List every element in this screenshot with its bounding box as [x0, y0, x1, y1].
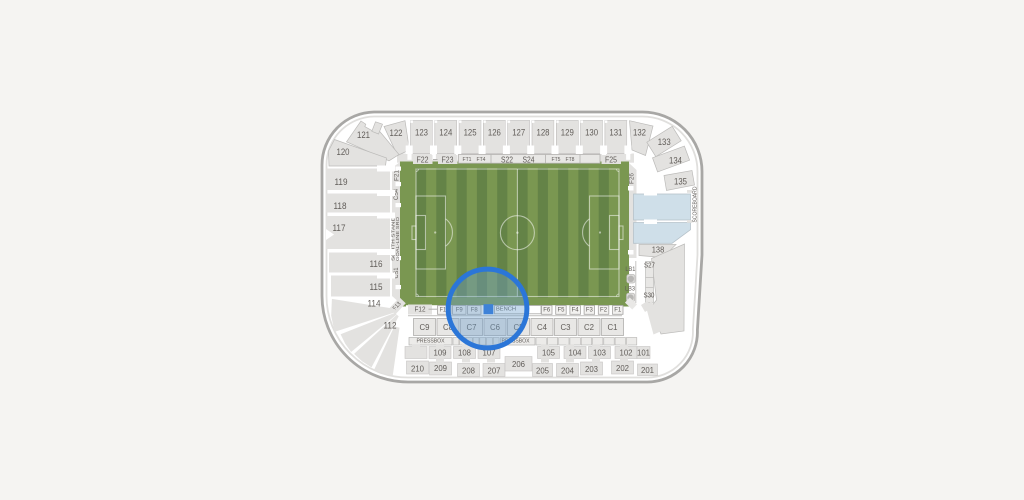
svg-text:LB3: LB3 [625, 286, 635, 293]
svg-text:209: 209 [434, 364, 447, 373]
svg-text:104: 104 [569, 349, 582, 358]
svg-text:102: 102 [620, 349, 633, 358]
svg-text:119: 119 [335, 177, 348, 187]
svg-text:118: 118 [334, 201, 347, 211]
svg-text:C9: C9 [420, 323, 430, 332]
svg-text:S24: S24 [523, 155, 536, 164]
svg-text:S22: S22 [501, 155, 513, 164]
svg-text:204: 204 [561, 367, 574, 376]
svg-text:120: 120 [337, 147, 350, 157]
svg-text:121: 121 [357, 130, 370, 140]
svg-text:127: 127 [512, 128, 525, 138]
svg-text:F12: F12 [415, 305, 426, 314]
svg-text:207: 207 [488, 367, 501, 376]
svg-text:S30: S30 [644, 293, 655, 300]
svg-text:133: 133 [658, 137, 671, 147]
svg-text:135: 135 [674, 177, 687, 187]
svg-text:203: 203 [585, 365, 598, 374]
svg-text:C3: C3 [561, 323, 571, 332]
svg-text:117: 117 [333, 223, 346, 233]
svg-text:206: 206 [512, 360, 525, 369]
svg-text:SCOREBOARD: SCOREBOARD [693, 186, 699, 222]
svg-text:PRESSBOX: PRESSBOX [417, 339, 445, 345]
svg-text:F1: F1 [614, 306, 621, 313]
svg-text:FT1: FT1 [463, 157, 472, 163]
svg-text:109: 109 [434, 349, 447, 358]
svg-text:132: 132 [633, 128, 646, 138]
svg-text:205: 205 [536, 367, 549, 376]
svg-text:101: 101 [637, 349, 650, 358]
svg-text:F26: F26 [629, 173, 636, 184]
svg-text:S27: S27 [644, 263, 655, 270]
svg-text:210: 210 [411, 365, 424, 374]
svg-text:130: 130 [585, 128, 598, 138]
svg-text:F23: F23 [442, 155, 454, 164]
svg-text:202: 202 [616, 364, 629, 373]
svg-text:201: 201 [641, 366, 654, 375]
svg-text:F4: F4 [572, 306, 579, 313]
svg-text:208: 208 [462, 367, 475, 376]
svg-text:F3: F3 [586, 306, 593, 313]
svg-text:124: 124 [439, 128, 452, 138]
svg-text:105: 105 [542, 349, 555, 358]
svg-text:114: 114 [368, 299, 381, 309]
svg-text:115: 115 [370, 282, 383, 292]
svg-text:FT4: FT4 [477, 157, 487, 163]
svg-text:134: 134 [669, 156, 682, 166]
svg-text:108: 108 [458, 349, 471, 358]
svg-text:128: 128 [537, 128, 550, 138]
svg-text:C2: C2 [584, 323, 594, 332]
svg-text:LB1: LB1 [625, 266, 635, 273]
svg-text:123: 123 [415, 128, 428, 138]
svg-text:112: 112 [384, 321, 397, 331]
svg-text:138: 138 [652, 245, 665, 255]
svg-text:F2: F2 [600, 306, 607, 313]
svg-text:126: 126 [488, 128, 501, 138]
svg-text:103: 103 [593, 349, 606, 358]
svg-text:FT5: FT5 [552, 157, 561, 163]
svg-text:C4: C4 [537, 323, 547, 332]
svg-text:131: 131 [609, 128, 622, 138]
svg-text:129: 129 [561, 128, 574, 138]
svg-text:C1: C1 [608, 323, 618, 332]
svg-text:122: 122 [390, 128, 403, 138]
svg-text:F22: F22 [417, 155, 429, 164]
svg-text:116: 116 [370, 259, 383, 269]
svg-text:F6: F6 [543, 306, 550, 313]
svg-text:F25: F25 [605, 155, 618, 164]
svg-text:F5: F5 [557, 306, 564, 313]
svg-text:FT8: FT8 [566, 157, 575, 163]
svg-text:GOAL-LINE SRO: GOAL-LINE SRO [395, 217, 401, 261]
svg-text:125: 125 [464, 128, 477, 138]
